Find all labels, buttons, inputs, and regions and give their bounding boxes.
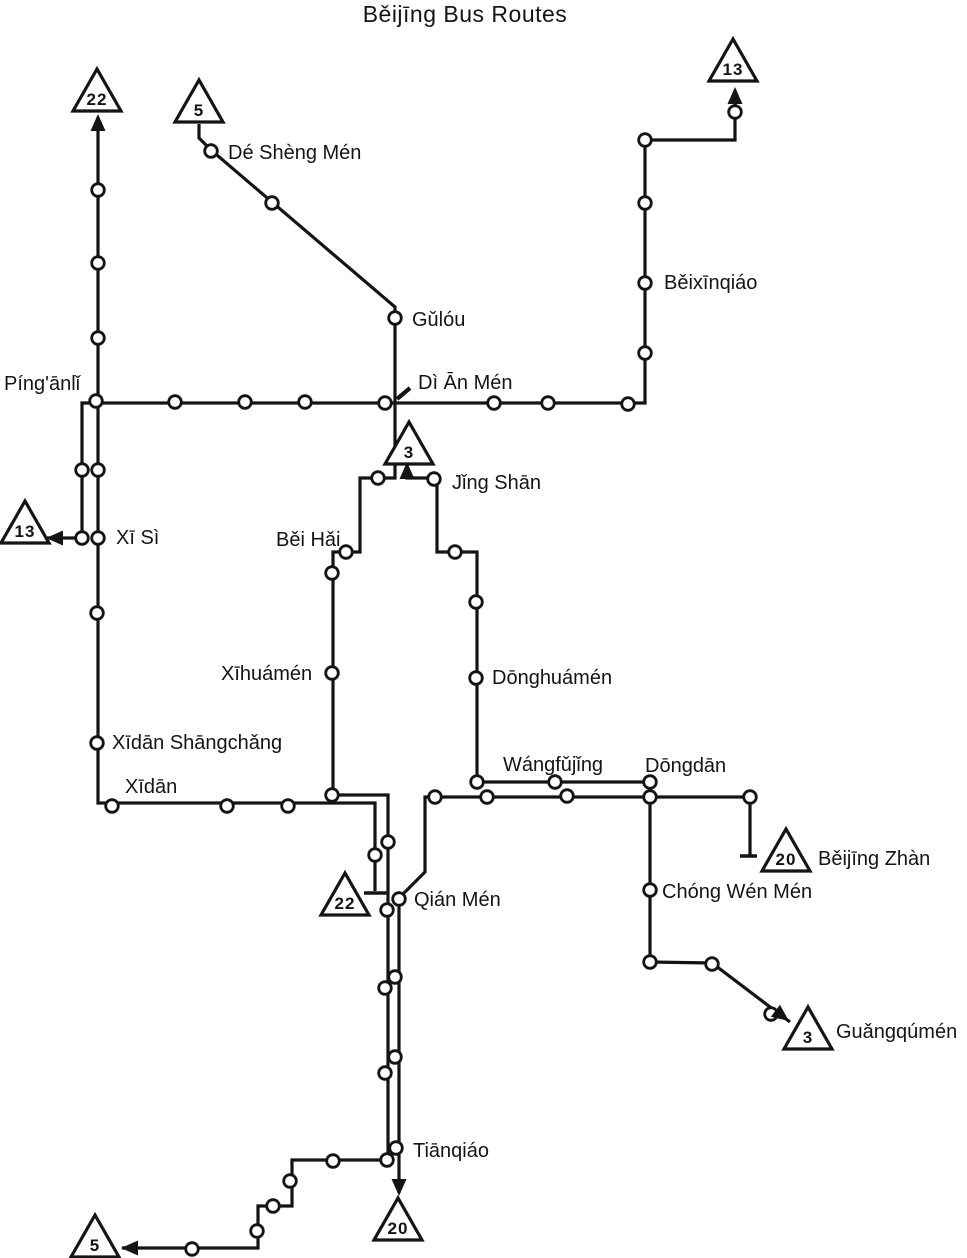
station-label: Dì Ān Mén xyxy=(418,371,512,394)
dianmen-pointer-tick xyxy=(397,388,410,399)
station-labels-layer: Dé Shèng MénGǔlóuPíng'ānlǐDì Ān MénBěixī… xyxy=(4,142,957,1162)
terminal-route-number: 3 xyxy=(404,443,414,462)
bus-stop xyxy=(326,567,339,580)
terminal-route-number: 5 xyxy=(194,101,204,120)
bus-stop xyxy=(622,398,635,411)
bus-stop xyxy=(92,257,105,270)
station-label: Běijīng Zhàn xyxy=(818,848,930,870)
route-5-terminal-marker: 5 xyxy=(175,80,223,122)
bus-stop xyxy=(429,791,442,804)
bus-stop xyxy=(639,347,652,360)
bus-stop xyxy=(284,1175,297,1188)
bus-stop xyxy=(372,472,385,485)
terminal-route-number: 20 xyxy=(388,1219,409,1238)
bus-stop xyxy=(92,464,105,477)
bus-stop xyxy=(644,956,657,969)
bus-stop xyxy=(644,791,657,804)
bus-stop xyxy=(282,800,295,813)
station-label: Jǐng Shān xyxy=(452,472,541,494)
bus-stop xyxy=(382,836,395,849)
bus-stop xyxy=(744,791,757,804)
route-13-terminal-marker: 13 xyxy=(709,39,757,81)
station-label: Dōnghuámén xyxy=(492,667,612,689)
bus-stop xyxy=(326,667,339,680)
station-label: Qián Mén xyxy=(414,889,501,911)
bus-stop xyxy=(379,397,392,410)
bus-stop xyxy=(369,849,382,862)
bus-stop xyxy=(729,106,742,119)
station-label: Xī Sì xyxy=(116,527,159,549)
terminal-route-number: 13 xyxy=(15,522,36,541)
bus-stop xyxy=(639,277,652,290)
bus-stop xyxy=(340,546,353,559)
bus-stop xyxy=(76,464,89,477)
bus-stop xyxy=(90,395,103,408)
bus-stop xyxy=(390,1142,403,1155)
bus-stop xyxy=(266,197,279,210)
route-terminals-layer: 2251313322203205 xyxy=(1,39,832,1257)
map-title: Běijīng Bus Routes xyxy=(363,1,568,27)
route-lines-layer xyxy=(47,90,790,1248)
bus-stop xyxy=(381,904,394,917)
route-3-terminal-marker: 3 xyxy=(784,1007,832,1049)
bus-stop xyxy=(393,893,406,906)
bus-stop xyxy=(205,145,218,158)
station-label: Chóng Wén Mén xyxy=(662,881,812,903)
bus-stop xyxy=(470,596,483,609)
direction-arrows-layer xyxy=(46,87,794,1256)
bus-stop xyxy=(76,532,89,545)
bus-stop xyxy=(169,396,182,409)
route-22-terminal-marker: 22 xyxy=(321,873,369,915)
station-label: Guǎngqúmén xyxy=(836,1021,957,1043)
station-label: Wángfǔjǐng xyxy=(503,754,603,776)
bus-stop xyxy=(549,776,562,789)
bus-stop xyxy=(91,607,104,620)
bus-stop xyxy=(470,672,483,685)
route-22-terminal-marker: 22 xyxy=(73,69,121,111)
terminal-route-number: 5 xyxy=(90,1236,100,1255)
station-label: Gǔlóu xyxy=(412,309,465,331)
bus-stop xyxy=(326,789,339,802)
terminal-route-number: 22 xyxy=(87,90,108,109)
bus-stop xyxy=(471,776,484,789)
bus-stop xyxy=(644,776,657,789)
bus-stop xyxy=(92,184,105,197)
route-5-line xyxy=(122,124,395,1248)
bus-stop xyxy=(389,312,402,325)
station-label: Xīdān Shāngchǎng xyxy=(112,732,282,754)
bus-stop xyxy=(92,532,105,545)
bus-stop xyxy=(428,473,441,486)
route-20-terminal-marker: 20 xyxy=(762,829,810,871)
bus-stop xyxy=(644,884,657,897)
route-3-terminal-marker: 3 xyxy=(385,422,433,464)
bus-stop xyxy=(106,800,119,813)
bus-stop xyxy=(389,1051,402,1064)
bus-stop xyxy=(639,197,652,210)
terminal-route-number: 22 xyxy=(335,894,356,913)
arrow-up-icon xyxy=(91,114,106,131)
station-label: Xīhuámén xyxy=(221,663,312,685)
terminal-route-number: 13 xyxy=(723,60,744,79)
bus-stop xyxy=(186,1243,199,1256)
station-label: Běi Hǎi xyxy=(276,529,340,551)
station-label: Dōngdān xyxy=(645,755,726,777)
bus-stop xyxy=(91,737,104,750)
station-label: Dé Shèng Mén xyxy=(228,142,361,164)
route-5-terminal-marker: 5 xyxy=(71,1215,119,1257)
arrow-up-icon xyxy=(728,87,743,104)
terminal-route-number: 20 xyxy=(776,850,797,869)
route-20-terminal-marker: 20 xyxy=(374,1198,422,1240)
bus-stop xyxy=(267,1200,280,1213)
bus-stop xyxy=(327,1155,340,1168)
bus-stop xyxy=(92,332,105,345)
bus-stop xyxy=(706,958,719,971)
bus-stop xyxy=(449,546,462,559)
bus-stop xyxy=(481,791,494,804)
station-label: Tiānqiáo xyxy=(413,1140,489,1162)
bus-stop xyxy=(542,397,555,410)
bus-stop xyxy=(239,396,252,409)
bus-stop xyxy=(381,1154,394,1167)
bus-stop xyxy=(488,397,501,410)
arrow-left-icon xyxy=(121,1241,138,1256)
bus-stop xyxy=(221,800,234,813)
route-20-line xyxy=(399,797,750,1193)
bus-stop xyxy=(561,790,574,803)
route-13-terminal-marker: 13 xyxy=(1,501,49,543)
bus-stop xyxy=(299,396,312,409)
station-label: Píng'ānlǐ xyxy=(4,373,82,395)
route-3-line xyxy=(407,461,790,1022)
station-label: Běixīnqiáo xyxy=(664,272,757,294)
terminal-route-number: 3 xyxy=(803,1028,813,1047)
bus-stop xyxy=(639,134,652,147)
bus-stop xyxy=(379,1067,392,1080)
bus-stop xyxy=(389,971,402,984)
page: 2251313322203205 Dé Shèng MénGǔlóuPíng'ā… xyxy=(0,0,967,1258)
bus-stop xyxy=(379,982,392,995)
bus-route-map: 2251313322203205 Dé Shèng MénGǔlóuPíng'ā… xyxy=(0,0,967,1258)
bus-stop xyxy=(251,1225,264,1238)
station-label: Xīdān xyxy=(125,776,177,798)
arrow-down-icon xyxy=(392,1179,407,1196)
